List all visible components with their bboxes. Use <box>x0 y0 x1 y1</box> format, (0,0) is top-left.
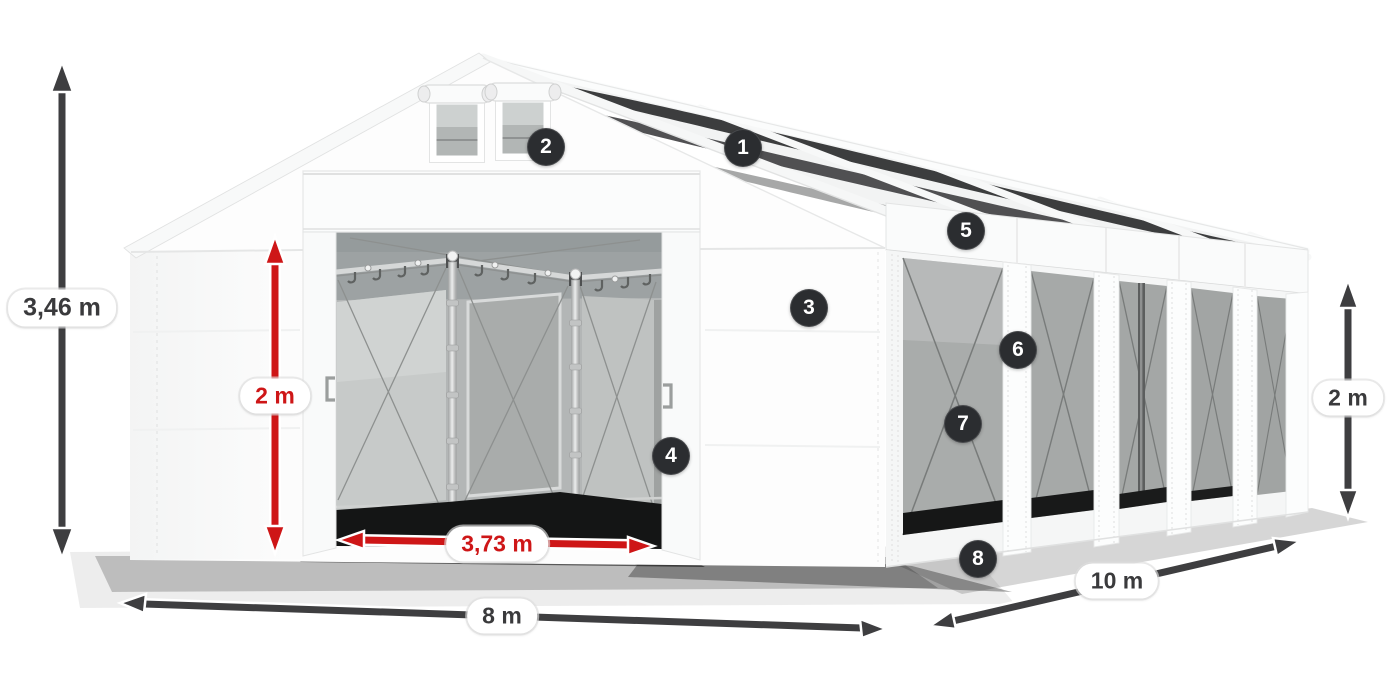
callout-marker-3[interactable]: 3 <box>790 289 828 327</box>
callout-number: 4 <box>665 444 677 468</box>
dimension-door-height-label: 2 m <box>240 379 310 414</box>
callout-number: 7 <box>957 412 969 436</box>
callout-marker-4[interactable]: 4 <box>652 437 690 475</box>
callout-marker-2[interactable]: 2 <box>527 128 565 166</box>
callout-number: 5 <box>960 219 972 243</box>
dimension-side-length-label: 10 m <box>1076 564 1158 599</box>
dimension-side-height-label: 2 m <box>1313 381 1383 416</box>
callout-number: 8 <box>972 547 984 571</box>
dimension-text: 3,73 m <box>461 531 533 557</box>
dimension-text: 8 m <box>482 603 522 629</box>
product-diagram-stage: 3,46 m 2 m 3,73 m 8 m 10 m 2 m 1 2 3 4 5… <box>0 0 1400 700</box>
dimension-text: 2 m <box>255 383 295 409</box>
callout-marker-6[interactable]: 6 <box>999 331 1037 369</box>
callout-marker-8[interactable]: 8 <box>959 540 997 578</box>
dimension-text: 2 m <box>1328 385 1368 411</box>
callout-marker-5[interactable]: 5 <box>947 212 985 250</box>
callout-number: 3 <box>803 296 815 320</box>
callout-number: 1 <box>737 136 749 160</box>
dimension-total-height-label: 3,46 m <box>8 290 116 327</box>
callout-number: 6 <box>1012 338 1024 362</box>
dimension-door-width-label: 3,73 m <box>446 527 548 562</box>
callout-number: 2 <box>540 135 552 159</box>
callout-marker-7[interactable]: 7 <box>944 405 982 443</box>
dimension-text: 10 m <box>1091 568 1143 594</box>
dimension-text: 3,46 m <box>23 294 101 322</box>
dimension-front-width-label: 8 m <box>467 599 537 634</box>
dimension-arrows <box>0 0 1400 700</box>
callout-marker-1[interactable]: 1 <box>724 129 762 167</box>
